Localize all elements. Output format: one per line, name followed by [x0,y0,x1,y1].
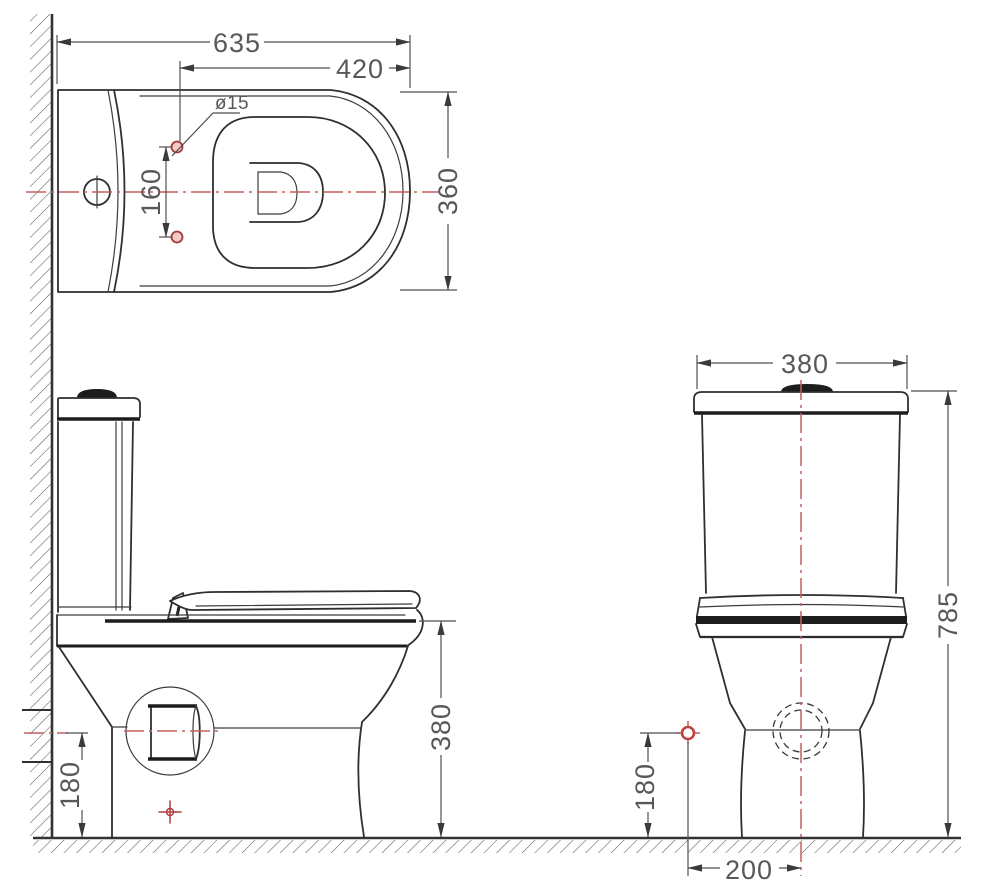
dim-label-seat-depth: 420 [336,54,384,84]
floor-hatch [33,840,961,853]
wall [30,14,52,839]
dim-label-total-depth: 635 [213,28,261,58]
dim-label-outlet-height: 180 [55,761,85,809]
seat-cover-side [170,591,420,610]
dim-label-tank-width: 380 [781,349,829,379]
dim-label-total-height: 785 [933,591,963,639]
toilet-dimension-drawing: 635 420 360 160 ø15 [0,0,1000,885]
technical-drawing-page: 635 420 360 160 ø15 [0,0,1000,885]
dim-label-hole-spacing: 160 [136,168,166,216]
dim-label-supply-height: 180 [630,763,660,811]
dim-label-supply-offset: 200 [725,855,773,885]
background [0,0,1000,885]
floor [33,838,961,853]
wall-hatch [30,14,52,839]
dim-label-seat-height: 380 [426,703,456,751]
fixing-hole-marker [172,232,183,243]
dim-label-bowl-width: 360 [433,167,463,215]
dim-label-hole-diameter: ø15 [215,93,249,114]
